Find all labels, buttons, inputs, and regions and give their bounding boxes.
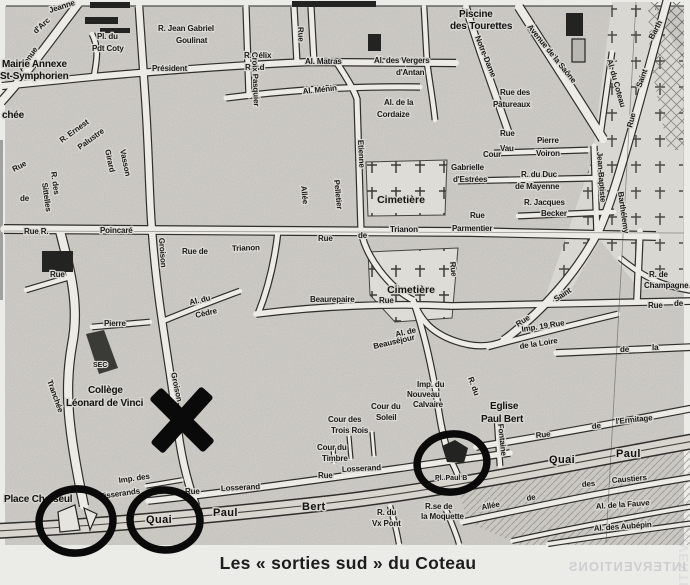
street-label-de2: de — [358, 231, 368, 240]
street-label-matras: Al. Matras — [305, 57, 342, 66]
street-label-rue-frag-r: Rue — [648, 301, 663, 310]
street-label-quai1: Quai — [146, 514, 172, 526]
show-through-text-bottom: INTERVENTIONS — [568, 559, 686, 574]
map-caption: Les « sorties sud » du Coteau — [220, 553, 477, 573]
street-label-parmentier: Parmentier — [452, 224, 492, 233]
street-label-r-du-duc: R. du Duc — [521, 170, 558, 179]
street-label-jean-gabriel: R. Jean Gabriel — [158, 24, 214, 33]
show-through-text-right: INTERVENTIONS — [676, 500, 690, 585]
place-label-pl-paul-b: Pl. Paul B — [435, 475, 467, 482]
street-label-de-mayenne: de Mayenne — [515, 182, 560, 191]
place-label-cimetiere-2: Cimetière — [387, 284, 435, 296]
place-label-eglise: Eglise — [490, 401, 519, 412]
street-label-rue-r: Rue R. — [24, 227, 48, 236]
scanned-map-page: Pl. du Pdt Coty R. Jean Gabriel Goulinat… — [0, 0, 690, 585]
street-label-goulinat: Goulinat — [176, 36, 208, 45]
street-label-poincare: Poincaré — [100, 226, 133, 235]
street-label-soleil: Soleil — [376, 413, 396, 422]
street-label-la-frag-r2: la — [652, 343, 659, 352]
dark-building — [42, 251, 73, 272]
place-label-des-tourettes: des Tourettes — [450, 21, 513, 32]
street-label-al-de-la: Al. de la — [384, 98, 414, 107]
street-label-la-moquette: la Moquette — [421, 512, 464, 521]
street-label-de-ermitage: de — [591, 421, 602, 431]
street-label-rue-v296: Rue — [296, 27, 306, 43]
street-label-rue-des: Rue des — [500, 88, 531, 97]
street-label-croix-pasquier: Croix Pasquier — [250, 52, 261, 107]
street-label-rue-ermitage: Rue — [535, 429, 551, 440]
street-label-voiron: Voiron — [536, 149, 560, 158]
street-label-pierre-r: Pierre — [537, 136, 559, 145]
street-label-trianon1: Trianon — [232, 243, 260, 253]
street-label-champagne: Champagne — [644, 281, 689, 290]
street-label-cour-des: Cour des — [328, 415, 362, 424]
street-label-trois-rois: Trois Rois — [331, 426, 369, 435]
place-label-st-symphorien: St-Symphorien — [0, 71, 69, 82]
street-label-de-frag-r: de — [674, 299, 684, 308]
street-label-etienne: Etienne — [356, 140, 366, 169]
place-label-sec: SEC — [93, 362, 107, 369]
street-label-r-de: R. de — [649, 270, 669, 279]
street-label-rue3: Rue — [500, 129, 515, 138]
place-label-cimetiere-1: Cimetière — [377, 194, 425, 206]
street-label-paul1: Paul — [213, 507, 238, 519]
street-label-cordaize: Cordaize — [377, 110, 410, 119]
street-label-timbre: Timbre — [322, 454, 348, 463]
street-label-de-frag-r2: de — [620, 345, 630, 354]
street-label-vergers: Al. des Vergers — [374, 56, 430, 65]
street-label-dantan: d'Antan — [396, 68, 425, 77]
street-label-quai2: Quai — [549, 454, 575, 466]
street-label-r-jacques: R. Jacques — [524, 198, 565, 207]
street-label-paul2: Paul — [616, 448, 641, 460]
street-label-imp-du: Imp. du — [417, 380, 445, 389]
street-label-president: Président — [152, 64, 188, 73]
street-label-becker: Becker — [541, 209, 567, 218]
street-label-rue-cem2: Rue — [448, 261, 459, 277]
street-label-nouveau: Nouveau — [407, 390, 440, 399]
street-label-calvaire: Calvaire — [413, 400, 444, 409]
place-label-paul-bert: Paul Bert — [481, 414, 524, 425]
scan-edge-smudge — [0, 140, 3, 300]
place-label-leonard: Léonard de Vinci — [66, 398, 144, 409]
street-label-rue-b: Rue — [50, 270, 65, 279]
street-label-pdt-coty: Pdt Coty — [92, 44, 124, 53]
place-label-college: Collège — [88, 385, 123, 396]
street-label-gabrielle: Gabrielle — [451, 163, 485, 172]
street-label-rue-de1: Rue de — [182, 247, 208, 256]
place-label-mairie-annexe: Mairie Annexe — [2, 59, 67, 70]
street-label-bert: Bert — [302, 501, 326, 513]
street-label-patureaux: Pâtureaux — [493, 100, 531, 109]
street-label-cour-du-t: Cour du — [317, 443, 347, 452]
street-label-beaurepaire: Beaurepaire — [310, 295, 355, 304]
place-label-piscine: Piscine — [459, 9, 493, 20]
street-label-de1: de — [20, 194, 30, 203]
street-label-pl-du: Pl. du — [97, 32, 118, 41]
street-label-cour-du-s: Cour du — [371, 402, 401, 411]
street-label-pierre-l: Pierre — [104, 319, 126, 328]
street-label-cour: Cour — [483, 150, 501, 159]
street-label-trianon2: Trianon — [390, 225, 418, 234]
street-label-rue1: Rue — [318, 234, 333, 243]
street-label-rue6: Rue — [318, 471, 333, 480]
street-label-rue4: Rue — [470, 211, 485, 220]
map-canvas: Pl. du Pdt Coty R. Jean Gabriel Goulinat… — [0, 0, 690, 556]
street-label-rse-de: R.se de — [425, 502, 453, 511]
street-label-destrees: d'Estrées — [453, 175, 488, 184]
street-label-r-du-vx: R. du — [377, 508, 397, 517]
place-label-place-choiseul: Place Choiseul — [4, 494, 73, 505]
place-label-chee: chée — [2, 110, 25, 121]
city-map: Pl. du Pdt Coty R. Jean Gabriel Goulinat… — [0, 0, 690, 585]
street-label-rue2: Rue — [379, 296, 394, 305]
street-label-vx-pont: Vx Pont — [372, 519, 401, 528]
street-label-des-caustiers: des — [581, 479, 596, 489]
street-label-vau: Vau — [500, 144, 514, 153]
